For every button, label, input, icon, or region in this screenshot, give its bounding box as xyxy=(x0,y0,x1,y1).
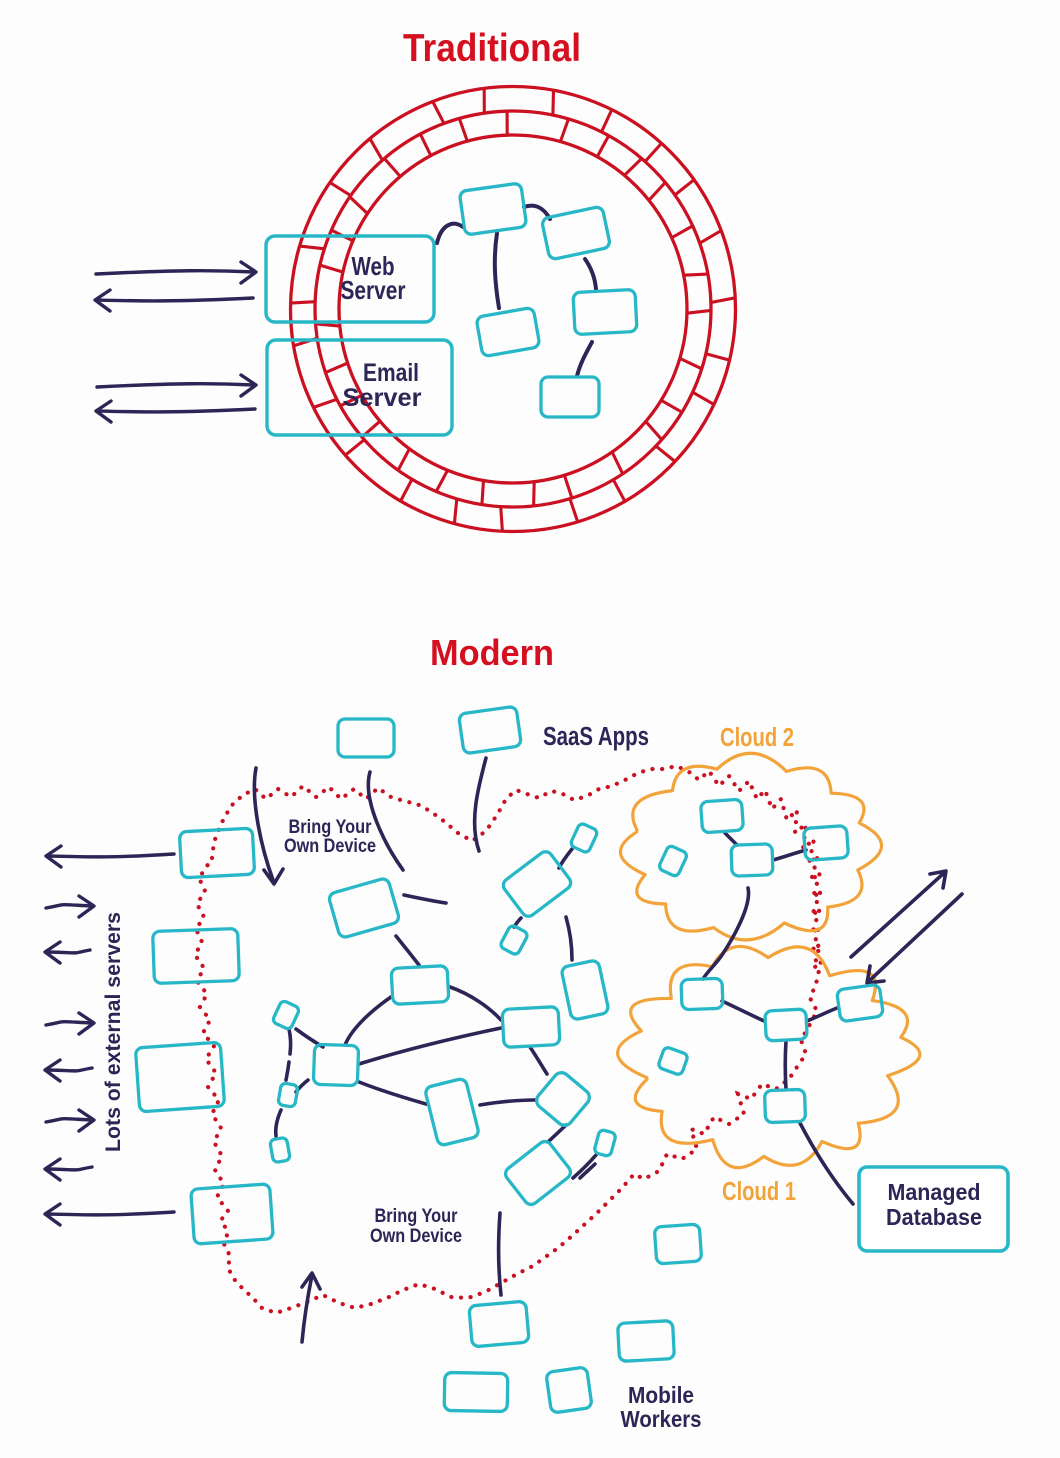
svg-text:Managed: Managed xyxy=(888,1179,981,1205)
svg-text:Lots of external servers: Lots of external servers xyxy=(102,912,125,1152)
svg-text:Cloud 1: Cloud 1 xyxy=(722,1178,796,1206)
svg-text:Email: Email xyxy=(363,359,419,387)
svg-text:Workers: Workers xyxy=(621,1406,702,1432)
svg-text:Mobile: Mobile xyxy=(628,1382,694,1408)
svg-text:Server: Server xyxy=(343,384,422,412)
svg-text:Modern: Modern xyxy=(430,632,554,673)
svg-text:Own Device: Own Device xyxy=(284,836,376,857)
svg-text:Bring Your: Bring Your xyxy=(289,817,373,838)
svg-text:Server: Server xyxy=(341,275,406,305)
svg-text:SaaS Apps: SaaS Apps xyxy=(543,723,649,751)
svg-text:Traditional: Traditional xyxy=(403,27,581,70)
svg-text:Database: Database xyxy=(886,1204,982,1230)
svg-text:Bring Your: Bring Your xyxy=(375,1206,459,1227)
svg-text:Cloud 2: Cloud 2 xyxy=(720,724,794,752)
svg-text:Own Device: Own Device xyxy=(370,1226,462,1247)
